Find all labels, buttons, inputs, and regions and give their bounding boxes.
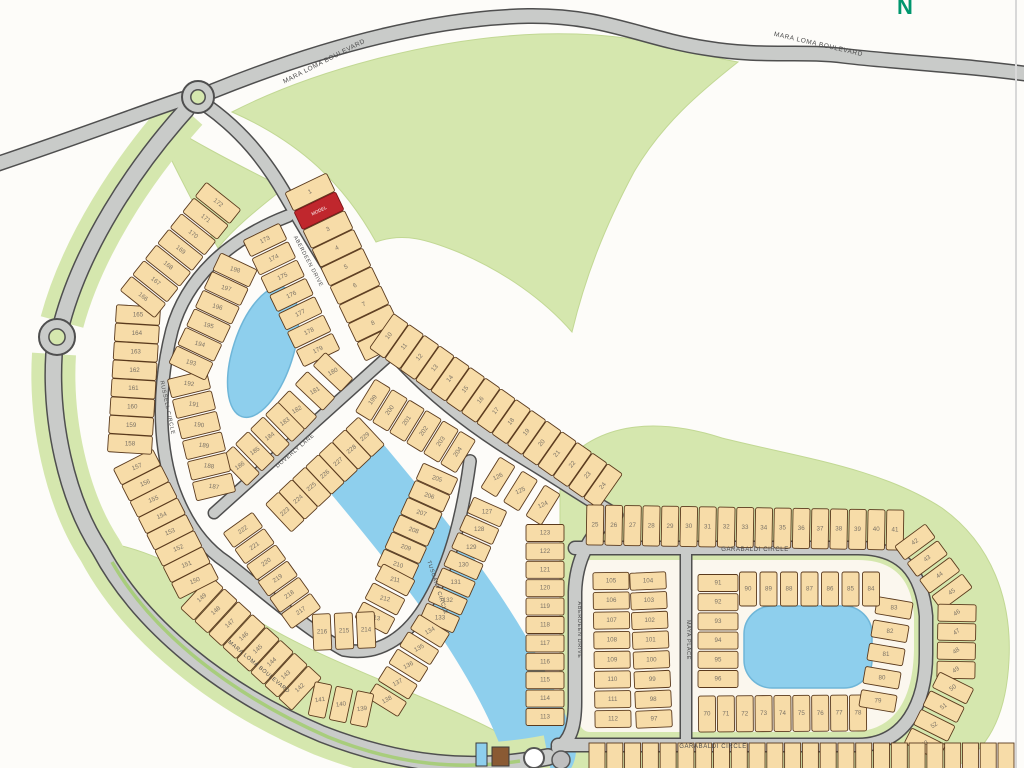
lot-number: 101: [645, 637, 656, 644]
lot-number: 100: [646, 656, 657, 663]
lot-number: 216: [317, 629, 328, 636]
lot-number: 140: [335, 700, 347, 708]
lot-number: 114: [540, 695, 550, 702]
street-label: GARABALDI CIRCLE: [721, 547, 789, 553]
lot-number: 121: [540, 566, 551, 573]
roundabout-island: [49, 329, 65, 345]
lot-number: 127: [482, 509, 493, 516]
lot-number: 97: [651, 716, 658, 723]
lot[interactable]: [607, 743, 623, 768]
lot-number: 28: [648, 522, 655, 529]
pool-icon: [476, 743, 487, 766]
lot-number: 26: [610, 522, 617, 529]
lot[interactable]: [785, 743, 801, 768]
lot-number: 128: [474, 526, 485, 533]
lot-number: 71: [722, 710, 729, 717]
lot-number: 122: [540, 548, 551, 555]
lot-number: 106: [606, 597, 617, 604]
lot[interactable]: [749, 743, 765, 768]
lot-number: 85: [847, 586, 854, 593]
lot-number: 70: [704, 711, 711, 718]
site-map: 1MODEL3456789101112131415161718192021222…: [0, 0, 1024, 768]
lot-number: 102: [645, 617, 656, 624]
lake: [744, 606, 872, 688]
lot-number: 112: [608, 716, 618, 723]
lot-number: 214: [361, 627, 372, 634]
lot-number: 86: [827, 586, 834, 593]
lot-number: 129: [466, 544, 477, 551]
lot-number: 118: [540, 622, 550, 629]
lot-number: 91: [715, 580, 722, 587]
lot-number: 110: [607, 676, 617, 683]
lot-number: 78: [855, 710, 862, 717]
lot[interactable]: [660, 743, 676, 768]
lot-number: 163: [131, 348, 142, 355]
street-label: GARABALDI CIRCLE: [679, 744, 747, 750]
lot-number: 34: [760, 524, 767, 531]
lot-number: 31: [704, 523, 711, 530]
spa-icon: [524, 748, 544, 768]
lot-number: 109: [607, 656, 618, 663]
lot-number: 25: [592, 522, 599, 529]
lot-number: 190: [193, 421, 205, 429]
lot-number: 189: [198, 442, 210, 450]
lot[interactable]: [998, 743, 1014, 768]
lot-number: 87: [806, 586, 813, 593]
lot-number: 133: [435, 615, 446, 622]
lot-number: 33: [742, 524, 749, 531]
lot[interactable]: [927, 743, 943, 768]
lot-number: 139: [356, 705, 368, 713]
lot-number: 120: [540, 585, 551, 592]
lot[interactable]: [909, 743, 925, 768]
lot-number: 131: [451, 579, 462, 586]
lot[interactable]: [874, 743, 890, 768]
lot-number: 123: [540, 530, 551, 537]
lot-number: 74: [779, 710, 786, 717]
lot-number: 73: [760, 710, 767, 717]
lot-number: 117: [540, 640, 550, 647]
lot-number: 165: [133, 312, 144, 319]
lot-number: 108: [607, 637, 618, 644]
lot-number: 75: [798, 710, 805, 717]
lot[interactable]: [838, 743, 854, 768]
lot-number: 215: [339, 628, 350, 635]
lot-number: 191: [188, 400, 200, 408]
lot[interactable]: [802, 743, 818, 768]
lot-number: 35: [779, 525, 786, 532]
lot-number: 161: [128, 385, 139, 392]
lot[interactable]: [945, 743, 961, 768]
lot-number: 80: [879, 674, 886, 681]
lot-number: 94: [715, 637, 722, 644]
site-plan-page: 1MODEL3456789101112131415161718192021222…: [0, 0, 1024, 768]
lot-number: 96: [715, 676, 722, 683]
lot-number: 187: [208, 483, 220, 491]
lot-number: 77: [836, 710, 843, 717]
lot-number: 104: [643, 578, 654, 585]
lot-number: 84: [868, 586, 875, 593]
lot-number: 105: [606, 578, 617, 585]
lot-number: 99: [649, 676, 656, 683]
lot-number: 162: [129, 367, 140, 374]
lot-number: 88: [786, 586, 793, 593]
lot-number: 39: [854, 526, 861, 533]
lot[interactable]: [767, 743, 783, 768]
lot[interactable]: [891, 743, 907, 768]
amenity-icon: [552, 751, 570, 768]
lot-number: 90: [745, 586, 752, 593]
lot-number: 141: [314, 696, 326, 704]
clubhouse-icon: [492, 747, 509, 766]
lot-number: 107: [606, 617, 617, 624]
lot-number: 130: [458, 562, 469, 569]
lot-number: 103: [644, 597, 655, 604]
lot-number: 119: [540, 603, 550, 610]
lot-number: 159: [126, 422, 137, 429]
lot[interactable]: [962, 743, 978, 768]
lot[interactable]: [625, 743, 641, 768]
lot-number: 29: [667, 523, 674, 530]
lot-number: 76: [817, 710, 824, 717]
lot-number: 40: [873, 526, 880, 533]
lot-number: 79: [875, 698, 882, 705]
lot-number: 72: [741, 710, 748, 717]
lot-number: 41: [892, 527, 899, 534]
lot-number: 81: [883, 651, 890, 658]
lot-number: 36: [798, 525, 805, 532]
north-indicator: N: [897, 0, 914, 20]
lot-number: 93: [715, 618, 722, 625]
lot-number: 89: [765, 586, 772, 593]
lot-number: 115: [540, 677, 550, 684]
lot-number: 37: [817, 525, 824, 532]
lot-number: 92: [715, 599, 722, 606]
lot-number: 158: [125, 441, 136, 448]
street-label: MAYA PLACE: [685, 620, 691, 660]
lot[interactable]: [820, 743, 836, 768]
lot-number: 27: [629, 522, 636, 529]
lot-number: 111: [608, 696, 618, 703]
lot[interactable]: [589, 743, 605, 768]
lot-number: 95: [715, 656, 722, 663]
lot-number: 188: [203, 462, 215, 470]
lot-number: 98: [650, 696, 657, 703]
lot[interactable]: [642, 743, 658, 768]
lot-number: 113: [540, 714, 550, 721]
lot-number: 30: [685, 523, 692, 530]
lot-number: 116: [540, 658, 550, 665]
lot-number: 160: [127, 404, 138, 411]
lot-number: 32: [723, 524, 730, 531]
roundabout-island: [191, 90, 205, 104]
lot-number: 83: [891, 605, 898, 612]
street-label: ABERDEEN DRIVE: [576, 602, 582, 659]
lot-number: 82: [887, 628, 894, 635]
lot-number: 38: [835, 526, 842, 533]
lot[interactable]: [980, 743, 996, 768]
lot[interactable]: [856, 743, 872, 768]
lot-number: 164: [132, 330, 143, 337]
lot-number: 192: [183, 380, 195, 388]
